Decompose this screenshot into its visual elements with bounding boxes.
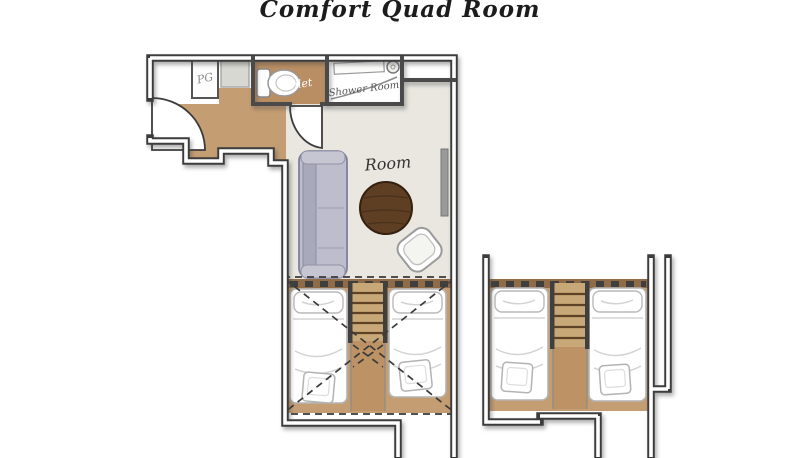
floor-plan-page: { "title": "Comfort Quad Room", "labels"… xyxy=(0,0,800,458)
room-label: Room xyxy=(363,152,412,174)
shelf xyxy=(221,61,249,87)
stair-landing-right xyxy=(553,345,587,409)
shower-room-label: Shower Room xyxy=(328,80,400,100)
bed xyxy=(491,288,548,400)
shower-head-icon xyxy=(387,61,399,73)
staircase xyxy=(550,281,590,349)
sofa xyxy=(299,151,347,278)
shower-mat xyxy=(334,61,385,75)
coffee-table xyxy=(360,182,412,234)
floor-plan-svg: PG xyxy=(0,0,800,458)
bed xyxy=(589,288,646,401)
bed xyxy=(389,289,446,397)
radiator xyxy=(441,149,448,216)
stair-landing-left xyxy=(351,341,385,411)
